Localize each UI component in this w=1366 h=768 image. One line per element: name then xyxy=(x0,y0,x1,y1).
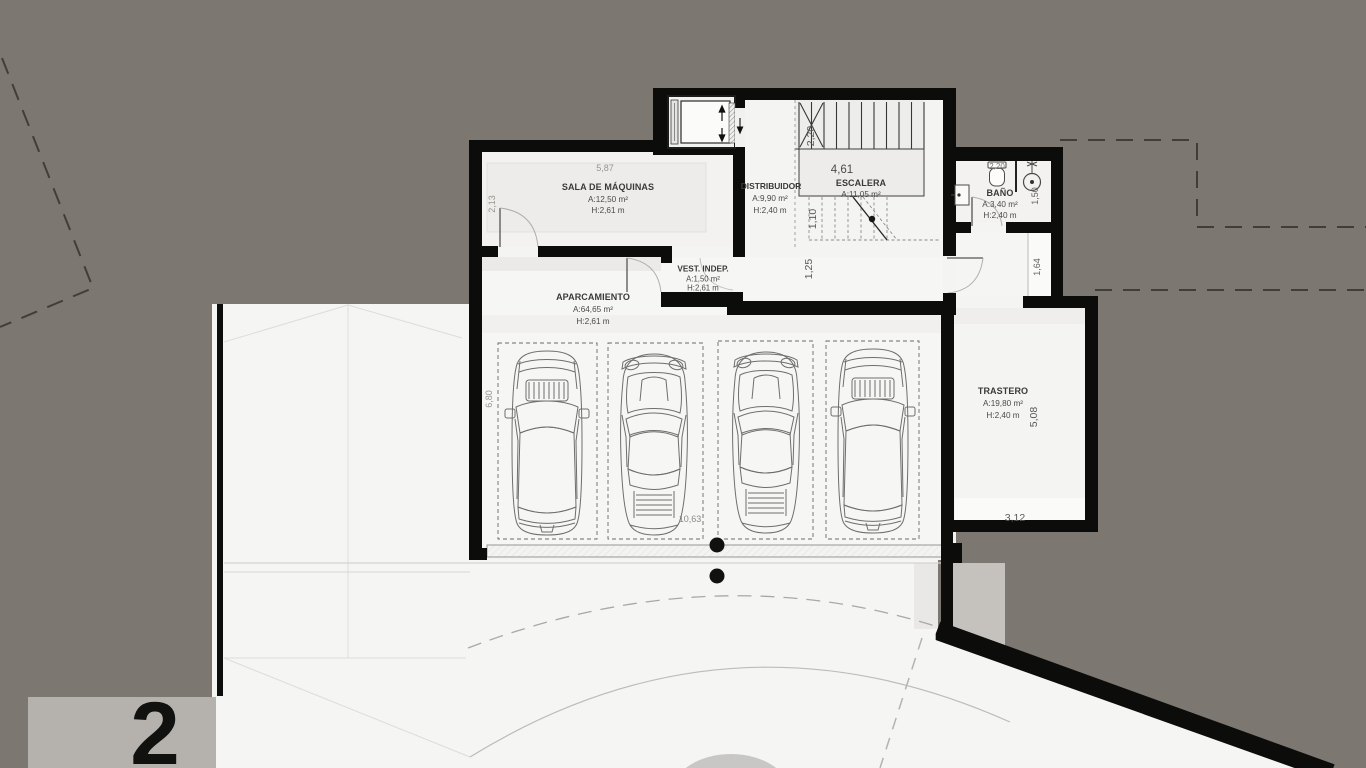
svg-text:DISTRIBUIDOR: DISTRIBUIDOR xyxy=(741,181,802,191)
svg-text:2: 2 xyxy=(130,683,180,768)
svg-text:BAÑO: BAÑO xyxy=(987,188,1014,198)
svg-text:ESCALERA: ESCALERA xyxy=(836,178,887,188)
svg-text:A:11,05 m²: A:11,05 m² xyxy=(841,190,881,199)
svg-text:1,50: 1,50 xyxy=(1030,187,1040,205)
svg-text:1,10: 1,10 xyxy=(807,209,819,230)
svg-text:H:2,61 m: H:2,61 m xyxy=(576,317,609,326)
svg-text:SALA DE MÁQUINAS: SALA DE MÁQUINAS xyxy=(562,182,654,192)
svg-text:H:2,40 m: H:2,40 m xyxy=(753,206,786,215)
svg-text:A:19,80 m²: A:19,80 m² xyxy=(983,399,1023,408)
svg-text:A:1,50 m²: A:1,50 m² xyxy=(686,275,720,284)
svg-text:H:2,40 m: H:2,40 m xyxy=(983,211,1016,220)
svg-text:TRASTERO: TRASTERO xyxy=(978,386,1028,396)
svg-text:10,63: 10,63 xyxy=(679,514,702,524)
svg-text:APARCAMIENTO: APARCAMIENTO xyxy=(556,292,630,302)
svg-text:2,20: 2,20 xyxy=(805,126,817,147)
svg-text:VEST. INDEP.: VEST. INDEP. xyxy=(677,265,728,274)
svg-text:3,12: 3,12 xyxy=(1005,512,1026,524)
svg-text:A:64,65 m²: A:64,65 m² xyxy=(573,305,613,314)
svg-text:H:2,61 m: H:2,61 m xyxy=(687,284,719,293)
svg-text:5,08: 5,08 xyxy=(1028,407,1040,428)
svg-text:1,25: 1,25 xyxy=(803,259,815,280)
svg-text:H:2,61 m: H:2,61 m xyxy=(591,206,624,215)
svg-text:1,64: 1,64 xyxy=(1032,258,1042,276)
svg-text:2,13: 2,13 xyxy=(487,195,497,213)
svg-text:H:2,40 m: H:2,40 m xyxy=(986,411,1019,420)
svg-text:A:12,50 m²: A:12,50 m² xyxy=(588,195,628,204)
svg-text:5,87: 5,87 xyxy=(596,163,614,173)
svg-text:6,80: 6,80 xyxy=(484,390,494,408)
svg-text:4,61: 4,61 xyxy=(831,164,853,176)
svg-text:A:3,40 m²: A:3,40 m² xyxy=(982,200,1018,209)
svg-text:A:9,90 m²: A:9,90 m² xyxy=(752,194,788,203)
svg-text:2,20: 2,20 xyxy=(989,162,1005,171)
